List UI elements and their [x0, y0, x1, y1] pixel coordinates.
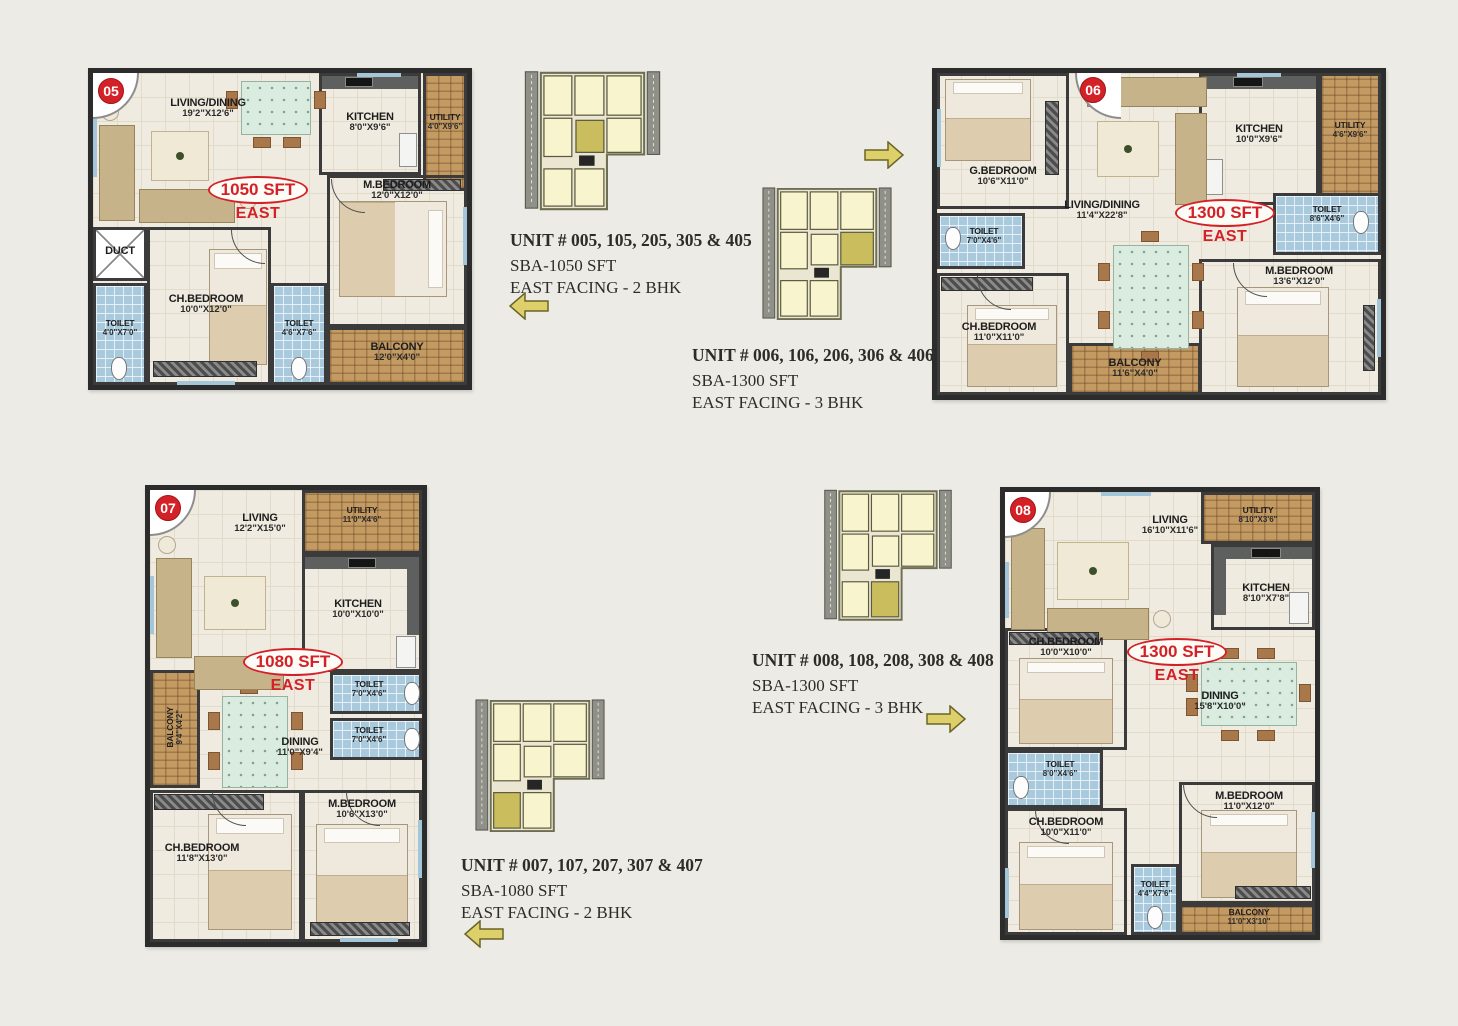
- room-label: M.BEDROOM11'0"X12'0": [1189, 790, 1309, 813]
- bed-icon: [1019, 842, 1113, 930]
- chair-icon: [208, 752, 220, 770]
- direction-arrow-left-icon: [464, 920, 504, 948]
- dining-table-icon: [1113, 245, 1189, 349]
- bed-icon: [316, 824, 408, 930]
- room-label: TOILET4'0"X7'0": [93, 319, 147, 337]
- chair-icon: [1257, 730, 1275, 741]
- sofa-icon: [156, 558, 192, 658]
- sofa-icon: [1011, 528, 1045, 630]
- toilet-bowl-icon: [404, 682, 420, 705]
- side-table-icon: [158, 536, 176, 554]
- stove-icon: [348, 558, 376, 568]
- key-plan-unit-06: [753, 185, 901, 323]
- room-label: LIVING/DINING11'4"X22'8": [1037, 199, 1167, 222]
- coffee-table-icon: [151, 131, 209, 181]
- room-label: BALCONY11'0"X3'10": [1199, 908, 1299, 926]
- room-label: KITCHEN8'0"X9'6": [319, 111, 421, 134]
- room-label: KITCHEN10'0"X9'6": [1209, 123, 1309, 146]
- area-badge: 1300 SFTEAST: [1117, 638, 1237, 685]
- wardrobe-icon: [1363, 305, 1375, 371]
- key-plan-unit-07: [466, 697, 614, 835]
- sofa-icon: [99, 125, 135, 221]
- wardrobe-icon: [153, 361, 257, 377]
- room-label: BALCONY9'4"X4'2": [166, 672, 184, 782]
- fridge-icon: [399, 133, 417, 167]
- room-label: G.BEDROOM10'6"X11'0": [947, 165, 1059, 188]
- room-label: CH.BEDROOM11'0"X11'0": [943, 321, 1055, 344]
- unit-number-badge: 08: [1010, 497, 1036, 523]
- chair-icon: [1221, 730, 1239, 741]
- bed-icon: [945, 79, 1031, 161]
- area-badge: 1300 SFTEAST: [1165, 199, 1285, 246]
- chair-icon: [1192, 311, 1204, 329]
- bed-icon: [967, 305, 1057, 387]
- bed-icon: [1019, 658, 1113, 744]
- toilet-bowl-icon: [291, 357, 307, 380]
- floorplan-unit-05: LIVING/DINING 19'2"X12'6" KITCHEN8'0"X9'…: [88, 68, 472, 390]
- stove-icon: [1251, 548, 1281, 558]
- unit-number-badge: 07: [155, 495, 181, 521]
- side-table-icon: [1153, 610, 1171, 628]
- room-label: BALCONY11'6"X4'0": [1069, 357, 1201, 380]
- floorplan-unit-08: LIVING16'10"X11'6" UTILITY8'10"X3'6" KIT…: [1000, 487, 1320, 940]
- room-label: BALCONY12'0"X4'0": [327, 341, 467, 364]
- chair-icon: [1192, 263, 1204, 281]
- chair-icon: [1299, 684, 1311, 702]
- wardrobe-icon: [1235, 886, 1311, 899]
- area-badge: 1080 SFTEAST: [233, 648, 353, 695]
- room-label: CH.BEDROOM11'8"X13'0": [154, 842, 250, 865]
- room-label: TOILET4'4"X7'6": [1131, 880, 1179, 898]
- direction-arrow-right-icon: [864, 141, 904, 169]
- chair-icon: [1141, 231, 1159, 242]
- window-icon: [463, 207, 467, 265]
- window-icon: [340, 938, 398, 942]
- bed-icon: [1237, 287, 1329, 387]
- toilet-bowl-icon: [1013, 776, 1029, 799]
- window-icon: [177, 381, 235, 385]
- window-icon: [93, 119, 97, 177]
- room-label: TOILET8'6"X4'6": [1289, 205, 1365, 223]
- stove-icon: [345, 77, 373, 87]
- bed-icon: [339, 201, 447, 297]
- chair-icon: [1098, 263, 1110, 281]
- room-label: DINING15'8"X10'0": [1155, 690, 1285, 713]
- room-label: CH.BEDROOM10'0"X12'0": [151, 293, 261, 316]
- key-plan-unit-08: [815, 487, 961, 624]
- chair-icon: [253, 137, 271, 148]
- room-label: CH.BEDROOM10'0"X10'0": [1011, 636, 1121, 659]
- toilet-bowl-icon: [1147, 906, 1163, 929]
- window-icon: [150, 576, 154, 634]
- room-utility: [423, 73, 467, 191]
- room-label: UTILITY8'10"X3'6": [1201, 506, 1315, 524]
- room-label: DUCT: [93, 245, 147, 257]
- floorplan-sheet: LIVING/DINING 19'2"X12'6" KITCHEN8'0"X9'…: [0, 0, 1458, 1026]
- floorplan-unit-07: LIVING12'2"X15'0" UTILITY11'0"X4'6" KITC…: [145, 485, 427, 947]
- chair-icon: [283, 137, 301, 148]
- toilet-bowl-icon: [404, 728, 420, 751]
- coffee-table-icon: [1097, 121, 1159, 177]
- room-label: M.BEDROOM13'6"X12'0": [1229, 265, 1369, 288]
- room-label: UTILITY4'6"X9'6": [1319, 121, 1381, 139]
- wardrobe-icon: [1045, 101, 1059, 175]
- room-label: LIVING/DINING 19'2"X12'6": [123, 97, 293, 120]
- unit-info-06: UNIT # 006, 106, 206, 306 & 406 SBA-1300…: [692, 345, 934, 414]
- bed-icon: [208, 814, 292, 930]
- room-label: M.BEDROOM10'6"X13'0": [308, 798, 416, 821]
- key-plan-unit-05: [515, 68, 670, 214]
- unit-number-badge: 06: [1080, 77, 1106, 103]
- bed-icon: [1201, 810, 1297, 898]
- sofa-icon: [1175, 113, 1207, 205]
- wardrobe-icon: [310, 922, 410, 936]
- window-icon: [937, 109, 941, 167]
- room-label: UTILITY11'0"X4'6": [302, 506, 422, 524]
- direction-arrow-right-icon: [926, 705, 966, 733]
- room-label: CH.BEDROOM10'0"X11'0": [1011, 816, 1121, 839]
- wardrobe-icon: [154, 794, 264, 810]
- area-badge: 1050 SFTEAST: [198, 176, 318, 223]
- chair-icon: [291, 712, 303, 730]
- fridge-icon: [396, 636, 416, 668]
- unit-info-05: UNIT # 005, 105, 205, 305 & 405 SBA-1050…: [510, 230, 752, 299]
- room-label: KITCHEN10'0"X10'0": [308, 598, 408, 621]
- room-label: TOILET4'6"X7'6": [271, 319, 327, 337]
- stove-icon: [1233, 77, 1263, 87]
- unit-info-07: UNIT # 007, 107, 207, 307 & 407 SBA-1080…: [461, 855, 703, 924]
- window-icon: [1311, 812, 1315, 868]
- room-label: M.BEDROOM12'0"X12'0": [337, 179, 457, 202]
- window-icon: [1377, 299, 1381, 357]
- room-label: TOILET8'0"X4'6": [1025, 760, 1095, 778]
- chair-icon: [208, 712, 220, 730]
- chair-icon: [314, 91, 326, 109]
- room-label: TOILET7'0"X4'6": [951, 227, 1017, 245]
- window-icon: [1005, 868, 1009, 918]
- unit-number-badge: 05: [98, 78, 124, 104]
- kitchen-counter: [407, 569, 419, 635]
- window-icon: [357, 73, 401, 77]
- room-label: UTILITY4'0"X9'6": [423, 113, 467, 131]
- chair-icon: [1098, 311, 1110, 329]
- coffee-table-icon: [1057, 542, 1129, 600]
- direction-arrow-left-icon: [509, 292, 549, 320]
- toilet-bowl-icon: [111, 357, 127, 380]
- chair-icon: [1257, 648, 1275, 659]
- room-label: TOILET7'0"X4'6": [338, 726, 400, 744]
- window-icon: [418, 820, 422, 878]
- floorplan-unit-06: G.BEDROOM10'6"X11'0" KITCHEN10'0"X9'6" U…: [932, 68, 1386, 400]
- window-icon: [1101, 492, 1151, 496]
- room-label: KITCHEN8'10"X7'8": [1221, 582, 1311, 605]
- window-icon: [1005, 562, 1009, 618]
- coffee-table-icon: [204, 576, 266, 630]
- window-icon: [1237, 73, 1281, 77]
